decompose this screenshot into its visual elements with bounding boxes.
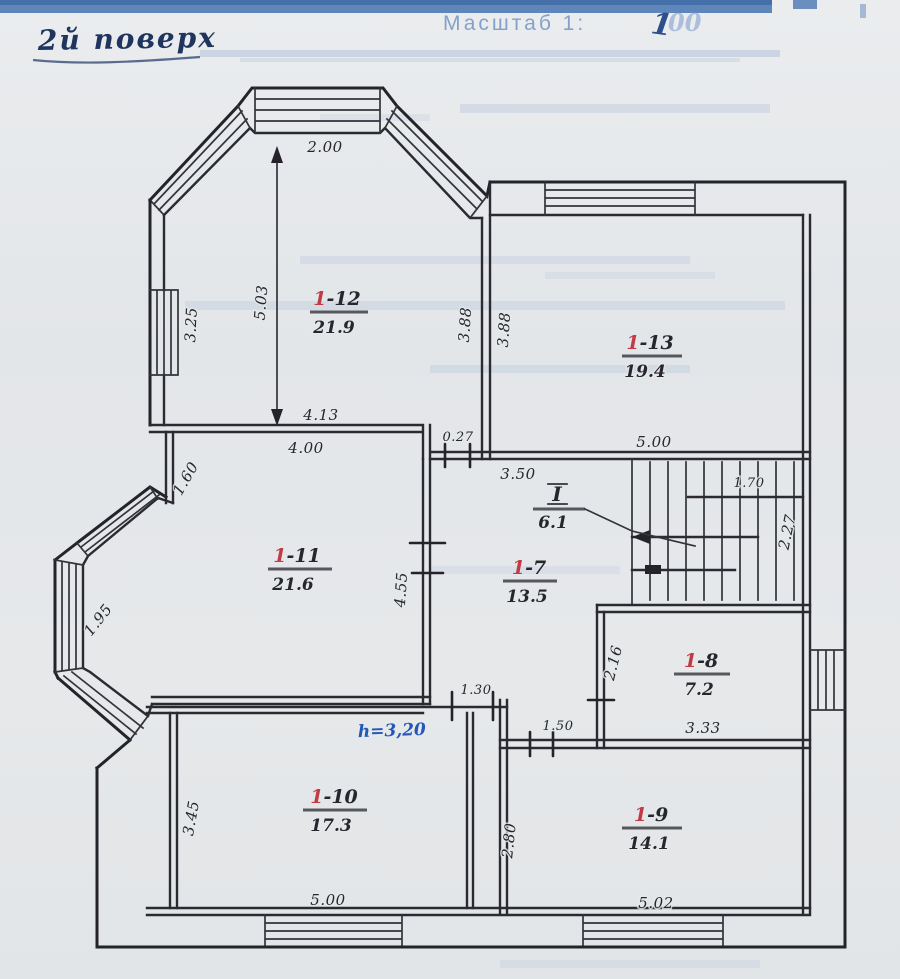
dim-door-r9: 1.50: [543, 719, 574, 734]
dim-r10-left: 3.45: [179, 799, 203, 837]
scale-value-trailing: 00: [668, 8, 702, 37]
dim-r12-right: 3.88: [455, 306, 475, 343]
walls: [55, 88, 845, 947]
height-note: h=3,20: [357, 720, 426, 742]
room-1-12-area: 21.9: [312, 318, 355, 338]
dim-r12-height: 5.03: [251, 284, 272, 321]
room-1-12-number: 1-12: [313, 288, 361, 310]
stairwell-label: I: [551, 482, 562, 506]
dim-door-r10: 1.30: [461, 683, 492, 698]
stairwell-area: 6.1: [538, 513, 568, 533]
room-1-7-area: 13.5: [506, 587, 547, 607]
room-1-8-number: 1-8: [684, 650, 718, 672]
dim-bay-top-width: 2.00: [306, 138, 342, 156]
dim-stair-height: 2.27: [774, 513, 799, 552]
dimension-labels: 2.00 5.03 3.25 3.88 3.88 4.13 4.00 0.27 …: [80, 138, 800, 912]
dimension-arrow-5-03: [271, 146, 283, 426]
dim-r13-left: 3.88: [494, 311, 514, 348]
room-1-11-area: 21.6: [271, 575, 314, 595]
dim-r10-bottom: 5.00: [310, 891, 345, 909]
scale-label: Масштаб 1:: [443, 12, 586, 35]
room-1-13-area: 19.4: [624, 362, 665, 382]
dim-r9-bottom: 5.02: [638, 894, 673, 912]
dim-bay-left: 1.95: [80, 600, 116, 639]
room-1-7-number: 1-7: [512, 557, 546, 579]
scanned-floor-plan-page: 2й поверх Масштаб 1: 1 00: [0, 0, 900, 979]
dim-wall-offset: 0.27: [443, 430, 474, 445]
room-1-13-number: 1-13: [626, 332, 674, 354]
dim-r9-left: 2.80: [498, 822, 520, 860]
floor-plan-drawing: 2й поверх Масштаб 1: 1 00: [0, 0, 900, 979]
stair-start-marker: [645, 565, 661, 574]
room-1-11-number: 1-11: [273, 545, 321, 567]
room-1-9-number: 1-9: [634, 804, 668, 826]
dim-r12-left: 3.25: [181, 307, 201, 343]
dim-stair-width: 1.70: [734, 476, 765, 491]
room-1-10-area: 17.3: [310, 816, 352, 836]
floor-title: 2й поверх: [37, 21, 218, 57]
dim-r7-top: 3.50: [500, 465, 535, 483]
room-1-8-area: 7.2: [684, 680, 714, 700]
floor-title-underline: [33, 57, 200, 63]
dim-r8-bottom: 3.33: [685, 719, 720, 737]
room-1-9-area: 14.1: [628, 834, 669, 854]
stairwell-leader-line: [585, 509, 695, 546]
dim-r13-bottom: 5.00: [636, 433, 671, 451]
room-1-10-number: 1-10: [310, 786, 358, 808]
dim-r11-top: 4.00: [287, 439, 323, 457]
dim-r11-right: 4.55: [391, 571, 411, 609]
dim-r12-bottom: 4.13: [302, 406, 338, 424]
